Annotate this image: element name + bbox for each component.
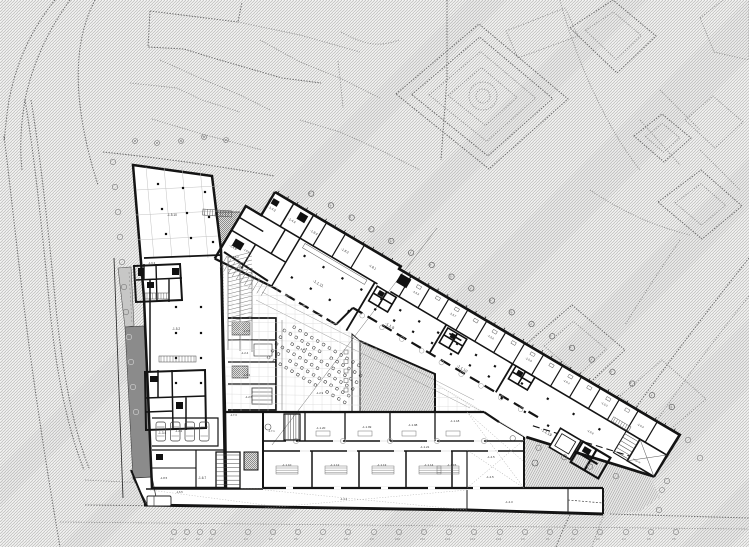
svg-text:-1.6.2: -1.6.2	[232, 255, 239, 259]
svg-text:2.6: 2.6	[294, 537, 298, 541]
svg-text:-1.4.3: -1.4.3	[505, 500, 513, 504]
svg-text:2.12: 2.12	[445, 537, 451, 541]
svg-text:2.11: 2.11	[420, 537, 425, 541]
svg-text:2.13: 2.13	[470, 537, 476, 541]
svg-text:2.0: 2.0	[170, 537, 174, 541]
svg-text:-1.2.9: -1.2.9	[316, 391, 324, 395]
svg-text:2.8: 2.8	[344, 537, 348, 541]
svg-text:-1.1.13: -1.1.13	[377, 463, 387, 467]
svg-text:-1.7.3: -1.7.3	[230, 413, 237, 417]
svg-text:-1.1.98: -1.1.98	[408, 423, 418, 427]
svg-text:-1.1.18: -1.1.18	[450, 419, 460, 423]
svg-text:2.5: 2.5	[269, 537, 273, 541]
svg-text:-1.4.5: -1.4.5	[486, 475, 494, 479]
svg-text:-1.1.99: -1.1.99	[362, 425, 372, 429]
svg-text:2.1: 2.1	[183, 537, 187, 541]
svg-text:2.7: 2.7	[319, 537, 323, 541]
svg-text:2.9: 2.9	[370, 537, 374, 541]
svg-text:-1.8.5: -1.8.5	[160, 476, 168, 480]
svg-text:-1.2.2: -1.2.2	[175, 429, 183, 433]
svg-text:2.14: 2.14	[496, 537, 502, 541]
svg-text:2.3: 2.3	[596, 537, 600, 541]
svg-text:-1.1.15: -1.1.15	[447, 463, 457, 467]
svg-text:2.4: 2.4	[244, 537, 248, 541]
svg-text:2.6: 2.6	[672, 537, 676, 541]
svg-text:-1.6.3: -1.6.3	[148, 261, 156, 265]
svg-text:-1.4.2: -1.4.2	[340, 497, 348, 501]
svg-text:2.3: 2.3	[209, 537, 213, 541]
svg-text:-1.2.4: -1.2.4	[241, 351, 249, 355]
svg-text:2.1: 2.1	[546, 537, 550, 541]
svg-text:-1.1.20: -1.1.20	[316, 426, 326, 430]
svg-text:-1.3.4: -1.3.4	[158, 431, 166, 435]
svg-text:2.4: 2.4	[622, 537, 626, 541]
svg-text:2.2: 2.2	[571, 537, 575, 541]
svg-text:2.5: 2.5	[647, 537, 651, 541]
svg-text:-1.2.8: -1.2.8	[300, 347, 308, 351]
svg-text:-1.1.14: -1.1.14	[424, 463, 434, 467]
svg-text:2.2: 2.2	[196, 537, 200, 541]
svg-text:-1.7.1: -1.7.1	[268, 429, 275, 433]
svg-text:-1.1.10: -1.1.10	[282, 463, 292, 467]
svg-text:-1.6.5: -1.6.5	[176, 490, 183, 494]
svg-text:-1.2.3: -1.2.3	[243, 373, 251, 377]
svg-text:-1.5.2: -1.5.2	[172, 327, 180, 331]
svg-text:-1.2.6: -1.2.6	[243, 329, 251, 333]
svg-text:-1.6.7: -1.6.7	[198, 476, 206, 480]
svg-text:-1.4.5: -1.4.5	[487, 455, 495, 459]
svg-text:2.10: 2.10	[395, 537, 401, 541]
svg-text:2.0: 2.0	[521, 537, 525, 541]
svg-text:-1.5.10: -1.5.10	[167, 213, 177, 217]
svg-text:-1.1.21: -1.1.21	[420, 445, 430, 449]
svg-text:-1.1.12: -1.1.12	[330, 463, 340, 467]
svg-text:-1.2.5: -1.2.5	[245, 395, 253, 399]
